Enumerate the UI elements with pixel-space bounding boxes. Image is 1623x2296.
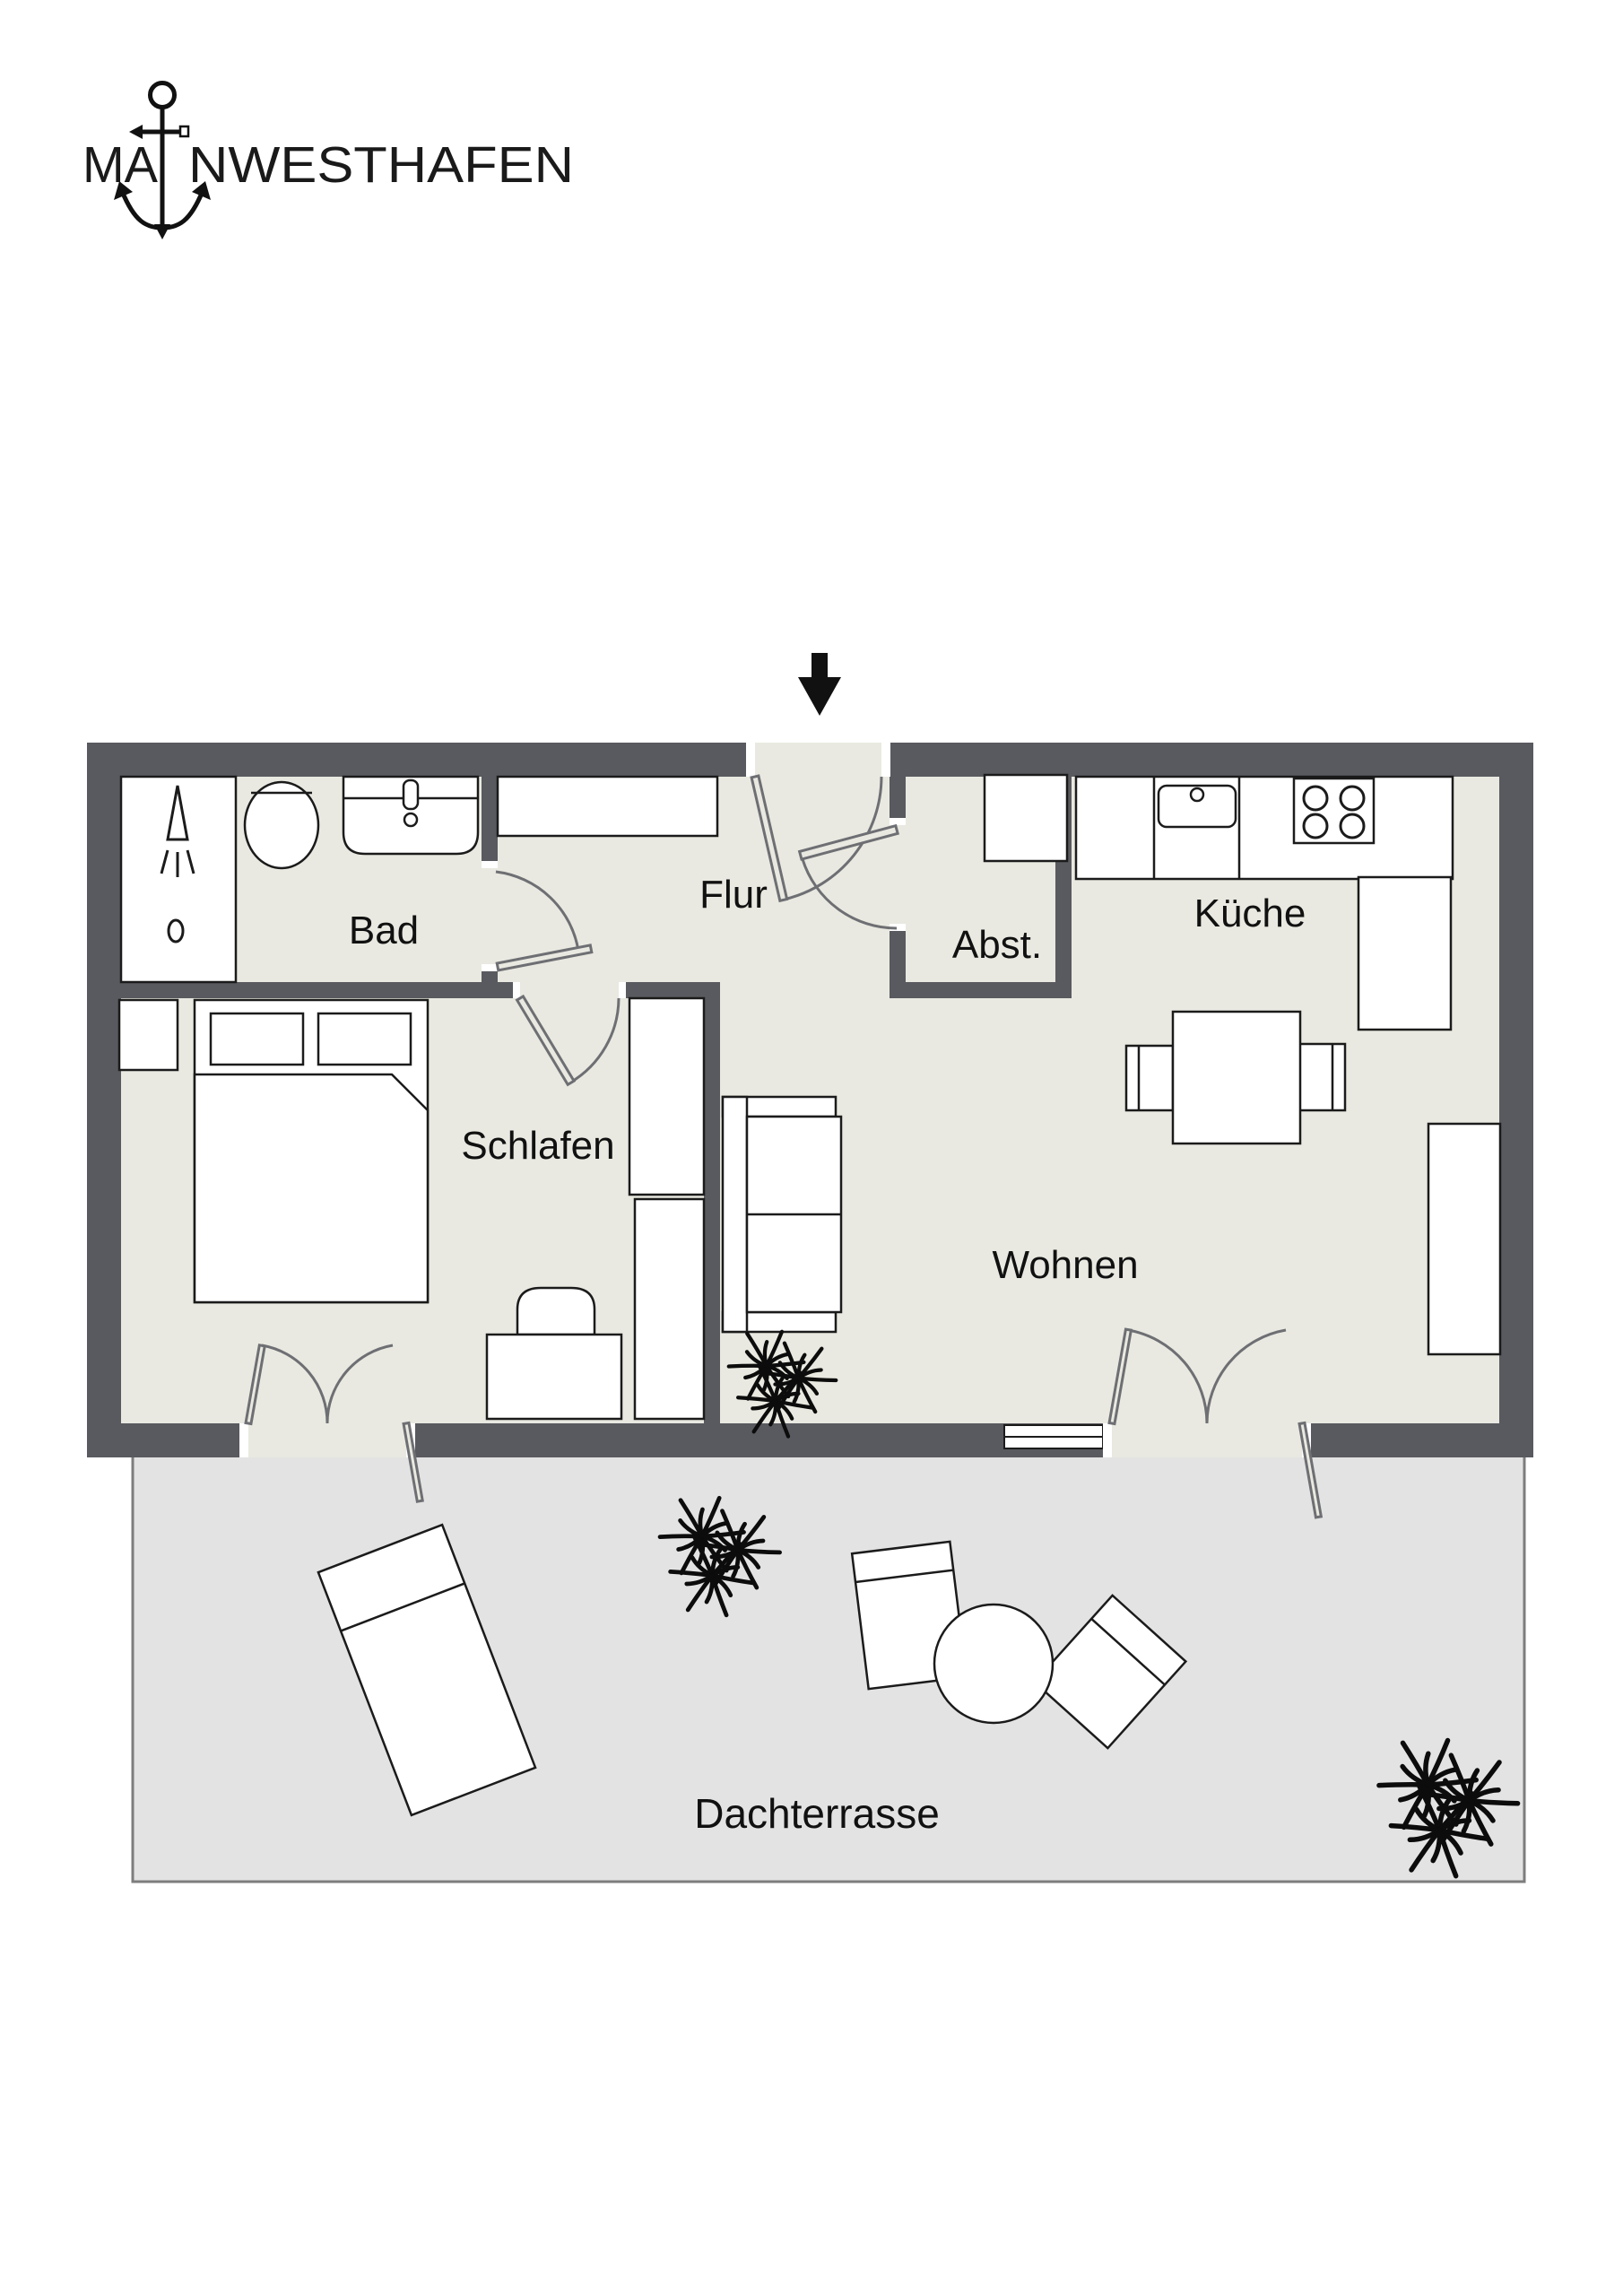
bedroom-terrace-door-opening	[248, 1423, 406, 1457]
terrace-table	[934, 1605, 1053, 1723]
entrance-opening	[755, 743, 881, 777]
room-label-schlafen: Schlafen	[461, 1124, 614, 1168]
room-label-bad: Bad	[349, 909, 419, 952]
kitchen-sink-icon	[1159, 786, 1236, 827]
entrance-arrow-icon	[798, 653, 841, 716]
window-icon	[1004, 1425, 1103, 1448]
sideboard	[1428, 1124, 1500, 1354]
dining-chair	[1298, 1044, 1345, 1110]
pillow	[211, 1013, 303, 1065]
hall-cabinet	[498, 777, 717, 836]
toilet-icon	[245, 782, 318, 868]
shower-icon	[121, 777, 236, 982]
stove-icon	[1294, 778, 1374, 843]
sofa	[723, 1097, 841, 1332]
desk-chair	[517, 1288, 595, 1335]
washbasin-icon	[343, 777, 478, 854]
logo: MA NWESTHAFEN	[82, 83, 574, 240]
living-terrace-door-opening	[1112, 1423, 1302, 1457]
nightstand	[119, 1000, 178, 1070]
dining-table	[1173, 1012, 1300, 1144]
roof-terrace: Dachterrasse	[133, 1453, 1524, 1892]
pillow	[318, 1013, 411, 1065]
room-label-kueche: Küche	[1194, 891, 1306, 935]
dining-chair	[1126, 1046, 1173, 1110]
wardrobe	[629, 998, 704, 1419]
desk	[487, 1335, 621, 1419]
storage-shelf	[985, 775, 1067, 861]
bed	[195, 1000, 428, 1302]
floorplan-canvas: MA NWESTHAFEN	[0, 0, 1623, 2296]
room-label-dachterrasse: Dachterrasse	[694, 1790, 940, 1837]
tall-kitchen-unit	[1358, 877, 1451, 1030]
kitchen-counter	[1076, 777, 1453, 879]
room-label-wohnen: Wohnen	[992, 1243, 1138, 1287]
room-label-flur: Flur	[699, 873, 768, 917]
logo-text-end: NWESTHAFEN	[188, 136, 574, 194]
room-label-abst: Abst.	[952, 923, 1042, 967]
